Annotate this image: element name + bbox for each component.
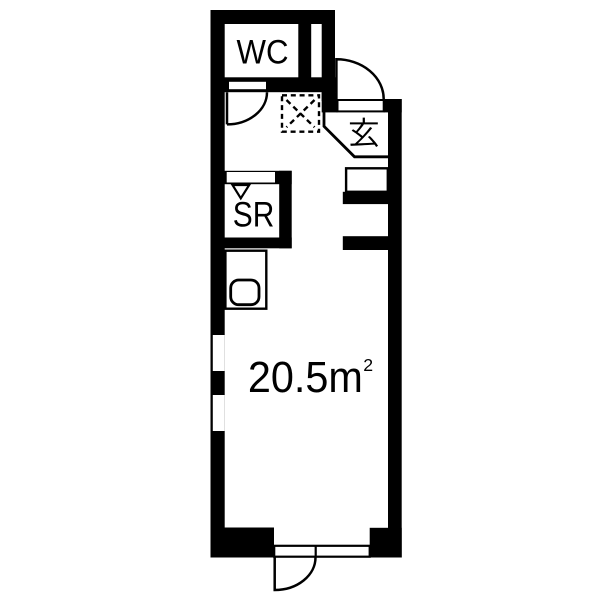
svg-text:WC: WC <box>237 34 289 72</box>
svg-text:2: 2 <box>363 355 373 375</box>
svg-text:SR: SR <box>233 196 274 235</box>
svg-text:20.5m: 20.5m <box>248 354 363 402</box>
